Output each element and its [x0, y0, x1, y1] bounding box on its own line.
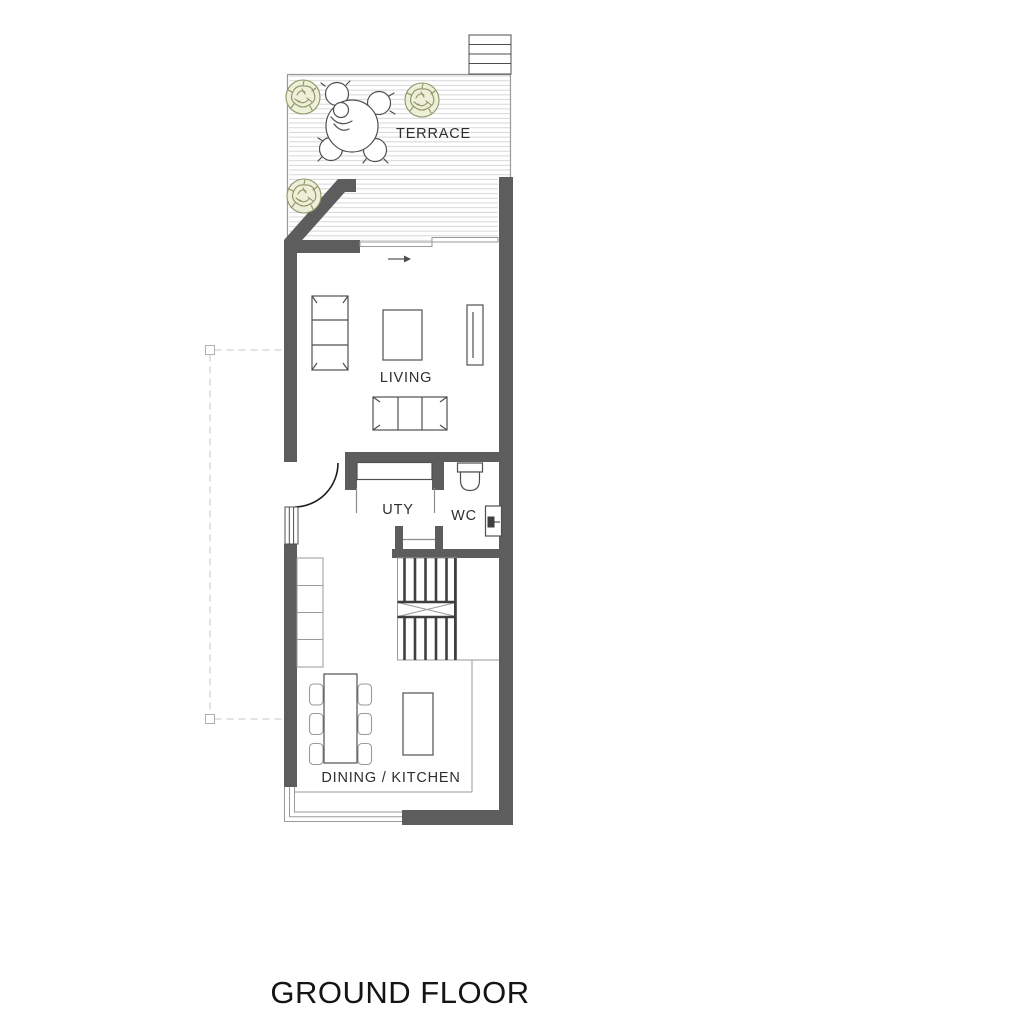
basin: [486, 506, 502, 536]
living-furniture: [312, 296, 483, 430]
tree-icon: [287, 179, 321, 213]
wall-uty-bottom: [392, 549, 499, 558]
wall-uty-wc-divider: [432, 462, 444, 490]
washing-machine: [357, 463, 432, 480]
wall-right: [499, 177, 513, 825]
tree-icon: [405, 83, 439, 117]
dining-chair: [310, 744, 324, 765]
sliding-door-panel-right: [432, 238, 498, 243]
canopy-marker-top: [206, 346, 215, 355]
door-slide-arrow: [388, 256, 411, 263]
staircase: [398, 558, 457, 660]
tree-icon: [286, 80, 320, 114]
dining-chair: [358, 744, 372, 765]
door-leaf: [285, 507, 298, 544]
dining-chair: [310, 684, 324, 705]
page-title: GROUND FLOOR: [270, 975, 529, 1010]
stair-landing-cross: [398, 603, 456, 617]
dining-chair: [358, 714, 372, 735]
dining-kitchen-label: DINING / KITCHEN: [321, 770, 460, 786]
toilet: [458, 463, 483, 491]
dining-table: [324, 674, 357, 763]
wall-stub-a: [395, 526, 403, 550]
floor-plan-drawing: TERRACE LIVING UTY WC DINING / KITCHEN G…: [0, 0, 1024, 1024]
sofa-bottom: [373, 397, 447, 430]
living-label: LIVING: [380, 370, 432, 386]
wall-south: [402, 810, 513, 825]
door-swing-arc: [295, 463, 338, 507]
dining-kitchen-furniture: [297, 558, 433, 765]
canopy-marker-bottom: [206, 715, 215, 724]
wall-stub-b: [435, 526, 443, 550]
wall-uty-top: [345, 452, 499, 462]
media-unit: [467, 305, 483, 365]
terrace-steps: [469, 35, 511, 74]
wall-uty-left-stub: [345, 462, 357, 490]
dining-chair: [310, 714, 324, 735]
terrace-label: TERRACE: [396, 126, 471, 142]
utility-wc-fixtures: [357, 463, 502, 540]
coffee-table: [383, 310, 422, 360]
wc-label: WC: [451, 508, 477, 524]
dining-chair: [358, 684, 372, 705]
sofa-left: [312, 296, 348, 370]
canopy-dashed-outline: [210, 350, 284, 719]
kitchen-island: [403, 693, 433, 755]
entrance-door: [285, 463, 338, 544]
utility-label: UTY: [382, 502, 413, 518]
floor-plan-page: TERRACE LIVING UTY WC DINING / KITCHEN G…: [0, 0, 1024, 1024]
wall-left-upper: [284, 240, 297, 462]
sliding-door-panel-left: [360, 242, 432, 247]
kitchen-counter: [297, 558, 323, 667]
wall-left-lower: [284, 544, 297, 787]
